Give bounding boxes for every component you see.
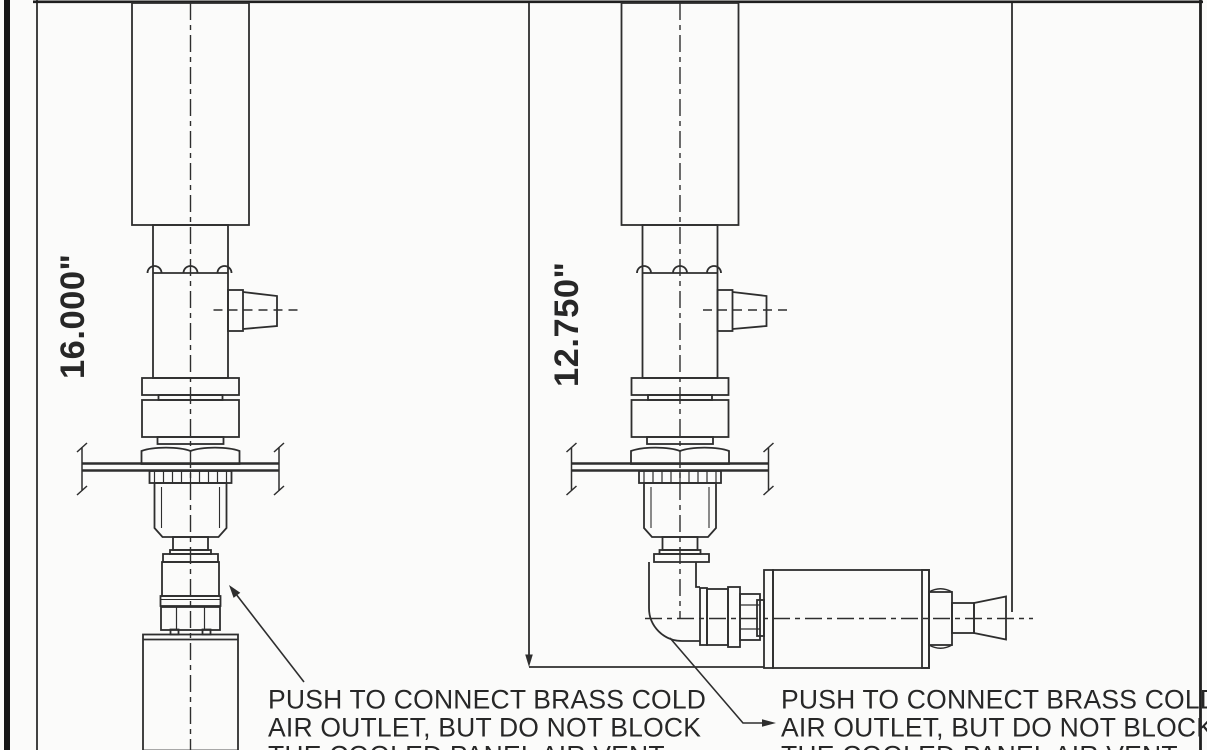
right-cooler-upper-body <box>567 3 794 554</box>
left-page-edge-bar <box>4 0 10 750</box>
right-note-arrowhead <box>762 719 776 727</box>
right-cooler-elbow-and-muffler <box>649 554 1006 668</box>
scanned-drawing-page: 16.000" 12.750" PUSH TO CONNECT BRASS CO… <box>0 0 1207 750</box>
note-right-line2: AIR OUTLET, BUT DO NOT BLOCK <box>781 713 1207 743</box>
technical-drawing-canvas: 16.000" 12.750" PUSH TO CONNECT BRASS CO… <box>0 0 1207 750</box>
left-cooler-upper-body <box>77 3 304 554</box>
dimension-label-left: 16.000" <box>54 254 92 379</box>
note-left-line2: AIR OUTLET, BUT DO NOT BLOCK <box>268 713 701 743</box>
dimension-lines <box>525 3 1012 667</box>
page-border <box>4 0 1203 750</box>
note-left: PUSH TO CONNECT BRASS COLD AIR OUTLET, B… <box>268 685 706 750</box>
note-right-line1: PUSH TO CONNECT BRASS COLD <box>781 685 1207 715</box>
right-cooler-assembly <box>567 3 1007 668</box>
note-left-line1: PUSH TO CONNECT BRASS COLD <box>268 685 706 715</box>
left-note-arrowhead <box>229 585 240 598</box>
note-right-line3-partial: THE COOLED PANEL AIR VENT <box>781 741 1178 750</box>
centerlines <box>191 3 1034 750</box>
left-note-leader <box>237 595 304 682</box>
note-left-line3-partial: THE COOLED PANEL AIR VENT <box>268 741 665 750</box>
note-right: PUSH TO CONNECT BRASS COLD AIR OUTLET, B… <box>781 685 1207 750</box>
dimension-label-right: 12.750" <box>548 262 586 387</box>
dimension-arrowhead-down <box>525 655 533 668</box>
